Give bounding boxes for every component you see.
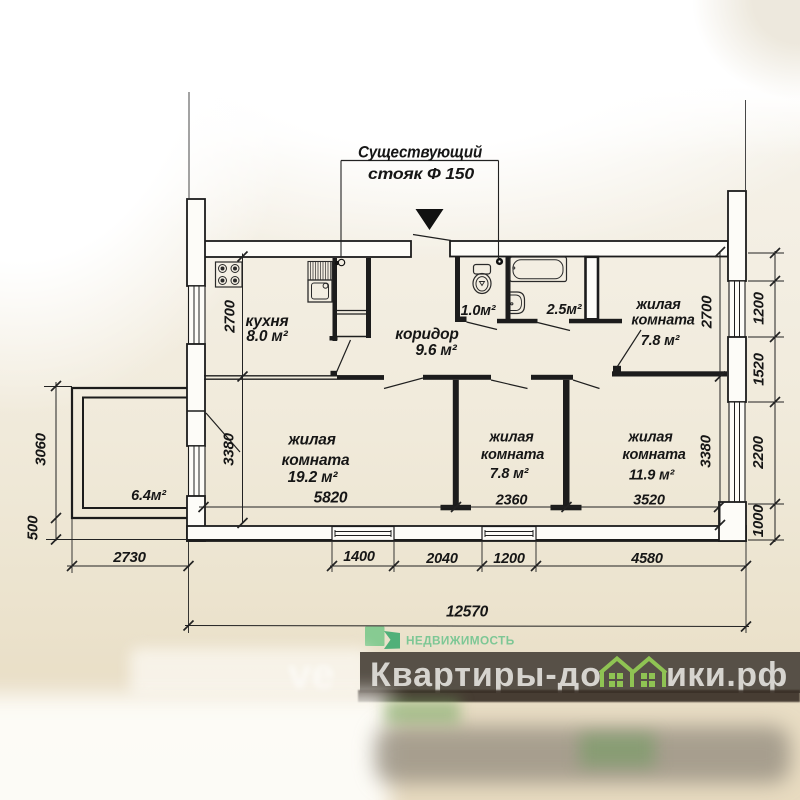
svg-text:3060: 3060 [33,432,50,465]
svg-text:1000: 1000 [750,504,767,537]
svg-text:2040: 2040 [425,551,458,567]
svg-text:4580: 4580 [630,551,663,567]
svg-text:ики.рф: ики.рф [666,656,788,694]
svg-text:НЕДВИЖИМОСТЬ: НЕДВИЖИМОСТЬ [406,634,515,648]
svg-text:8.0 м²: 8.0 м² [246,328,288,345]
svg-text:комната: комната [481,447,544,463]
svg-text:2200: 2200 [750,435,767,469]
svg-text:2700: 2700 [222,299,239,333]
svg-text:жилая: жилая [287,432,335,449]
svg-text:1400: 1400 [343,549,375,565]
svg-text:1520: 1520 [751,352,768,385]
svg-text:1.0м²: 1.0м² [461,303,497,319]
svg-text:жилая: жилая [627,430,673,446]
svg-text:7.8 м²: 7.8 м² [641,333,681,349]
svg-text:2700: 2700 [699,295,716,329]
svg-text:9.6 м²: 9.6 м² [415,342,457,359]
svg-text:комната: комната [282,452,350,469]
svg-text:жилая: жилая [635,297,681,313]
svg-text:1200: 1200 [751,291,768,324]
svg-text:Квартиры-до: Квартиры-до [370,656,602,694]
svg-text:3380: 3380 [221,432,238,465]
svg-text:7.8 м²: 7.8 м² [490,466,530,482]
svg-text:12570: 12570 [446,604,489,621]
svg-text:2360: 2360 [495,493,528,509]
svg-text:11.9 м²: 11.9 м² [629,468,676,484]
svg-text:500: 500 [25,515,42,540]
svg-text:3520: 3520 [633,493,665,509]
svg-text:2730: 2730 [112,549,146,566]
svg-text:Существующий: Существующий [358,143,483,162]
svg-text:жилая: жилая [488,430,534,446]
svg-text:19.2 м²: 19.2 м² [288,469,339,486]
svg-text:коридор: коридор [395,326,458,343]
svg-text:комната: комната [622,447,685,463]
svg-text:6.4м²: 6.4м² [131,488,167,504]
svg-text:5820: 5820 [314,490,348,507]
svg-text:стояк Ф 150: стояк Ф 150 [368,166,474,183]
svg-text:комната: комната [631,313,694,329]
svg-text:1200: 1200 [493,551,525,567]
svg-text:3380: 3380 [698,434,715,467]
svg-text:2.5м²: 2.5м² [546,302,583,318]
